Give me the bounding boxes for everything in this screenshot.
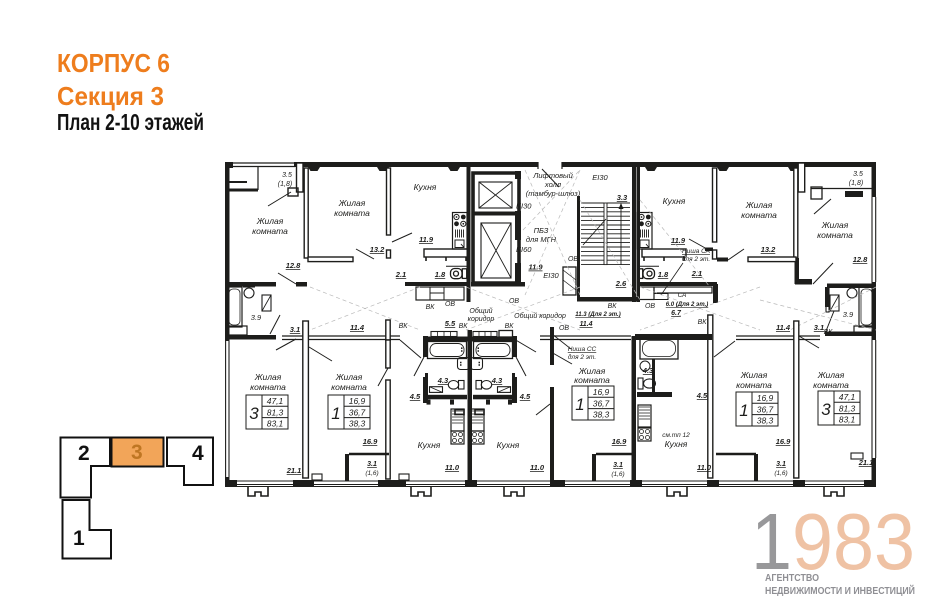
svg-text:4: 4: [192, 442, 204, 465]
svg-text:комната: комната: [817, 230, 853, 240]
svg-text:Жилая: Жилая: [740, 370, 768, 380]
svg-text:EI30: EI30: [592, 173, 608, 182]
svg-text:1: 1: [73, 527, 85, 550]
svg-text:(1,8): (1,8): [849, 180, 863, 187]
svg-text:холл: холл: [544, 180, 562, 189]
svg-text:ОВ: ОВ: [509, 298, 519, 305]
svg-text:16,9: 16,9: [757, 393, 774, 403]
svg-text:Лифтовый: Лифтовый: [532, 171, 573, 180]
svg-text:Кухня: Кухня: [414, 182, 437, 192]
svg-text:16,9: 16,9: [593, 387, 610, 397]
svg-text:16.9: 16.9: [776, 437, 791, 446]
svg-text:3: 3: [821, 400, 831, 419]
svg-text:ВК: ВК: [505, 323, 515, 330]
svg-text:ВК: ВК: [399, 323, 409, 330]
svg-text:комната: комната: [736, 380, 772, 390]
svg-text:Кухня: Кухня: [497, 440, 520, 450]
svg-text:11.0: 11.0: [445, 463, 460, 472]
svg-text:3.9: 3.9: [843, 310, 854, 319]
svg-text:83,1: 83,1: [839, 415, 856, 425]
svg-text:2.1: 2.1: [395, 270, 406, 279]
svg-text:ОВ: ОВ: [645, 303, 655, 310]
svg-text:Жилая: Жилая: [335, 372, 363, 382]
svg-text:Кухня: Кухня: [663, 196, 686, 206]
svg-text:для 2 эт.: для 2 эт.: [682, 255, 710, 263]
svg-text:4.5: 4.5: [519, 392, 531, 401]
svg-text:(1,6): (1,6): [611, 471, 624, 478]
svg-text:коридор: коридор: [468, 315, 495, 323]
svg-text:13.2: 13.2: [761, 245, 776, 254]
svg-text:НЕДВИЖИМОСТИ И ИНВЕСТИЦИЙ: НЕДВИЖИМОСТИ И ИНВЕСТИЦИЙ: [765, 584, 915, 597]
svg-text:3: 3: [249, 404, 259, 423]
svg-text:38,3: 38,3: [593, 410, 610, 420]
svg-text:16,9: 16,9: [349, 396, 366, 406]
svg-text:Ниша СС: Ниша СС: [568, 346, 597, 353]
svg-text:Жилая: Жилая: [745, 200, 773, 210]
svg-text:Жилая: Жилая: [254, 372, 282, 382]
svg-text:11.0: 11.0: [697, 463, 712, 472]
svg-text:Общий: Общий: [469, 307, 492, 315]
svg-text:3.3: 3.3: [617, 193, 628, 202]
svg-text:План 2-10 этажей: План 2-10 этажей: [57, 109, 204, 135]
svg-text:EI30: EI30: [516, 202, 532, 211]
svg-text:Жилая: Жилая: [256, 216, 284, 226]
svg-text:47,1: 47,1: [267, 396, 284, 406]
svg-text:11.4: 11.4: [350, 323, 365, 332]
svg-text:11.9: 11.9: [419, 235, 434, 244]
svg-text:12.8: 12.8: [286, 261, 301, 270]
svg-text:4.5: 4.5: [409, 392, 421, 401]
svg-text:Жилая: Жилая: [338, 198, 366, 208]
svg-text:47,1: 47,1: [839, 392, 856, 402]
svg-text:для 2 эт.: для 2 эт.: [568, 353, 596, 361]
svg-text:3.9: 3.9: [251, 313, 262, 322]
svg-text:38,3: 38,3: [757, 416, 774, 426]
svg-text:EI60: EI60: [516, 245, 532, 254]
svg-text:ОВ: ОВ: [445, 301, 455, 308]
svg-text:комната: комната: [741, 210, 777, 220]
svg-text:81,3: 81,3: [839, 403, 856, 413]
svg-text:(1,6): (1,6): [365, 470, 378, 477]
svg-text:ВК: ВК: [824, 329, 834, 336]
svg-text:1: 1: [331, 404, 340, 423]
svg-text:3: 3: [131, 441, 143, 464]
svg-text:1.8: 1.8: [658, 270, 669, 279]
svg-text:Жилая: Жилая: [817, 370, 845, 380]
svg-text:АГЕНТСТВО: АГЕНТСТВО: [765, 573, 819, 584]
svg-text:комната: комната: [574, 375, 610, 385]
svg-text:11.3 (Для 2 эт.): 11.3 (Для 2 эт.): [575, 312, 620, 318]
svg-text:комната: комната: [252, 226, 288, 236]
svg-text:13.2: 13.2: [370, 245, 385, 254]
svg-text:3.1: 3.1: [776, 461, 786, 468]
svg-text:12.8: 12.8: [853, 255, 868, 264]
svg-text:3.5: 3.5: [853, 171, 863, 178]
svg-text:11.9: 11.9: [528, 263, 543, 272]
svg-text:38,3: 38,3: [349, 419, 366, 429]
svg-text:2: 2: [78, 442, 90, 465]
svg-text:для МГН: для МГН: [526, 235, 557, 244]
svg-text:11.0: 11.0: [530, 463, 545, 472]
svg-text:3.5: 3.5: [282, 172, 292, 179]
svg-text:6.7: 6.7: [671, 310, 682, 317]
svg-text:Ниша СА: Ниша СА: [682, 248, 710, 255]
svg-text:Кухня: Кухня: [418, 440, 441, 450]
svg-text:Кухня: Кухня: [665, 439, 688, 449]
svg-text:КОРПУС 6: КОРПУС 6: [57, 48, 170, 78]
svg-text:ПБЗ: ПБЗ: [534, 226, 549, 235]
svg-text:81,3: 81,3: [267, 407, 284, 417]
svg-text:36,7: 36,7: [349, 407, 366, 417]
svg-text:СА: СА: [678, 292, 687, 299]
svg-text:2.6: 2.6: [615, 279, 627, 288]
svg-text:21.1: 21.1: [286, 466, 302, 475]
svg-text:EI30: EI30: [543, 271, 559, 280]
svg-text:Жилая: Жилая: [821, 220, 849, 230]
svg-text:1.8: 1.8: [435, 270, 446, 279]
svg-text:36,7: 36,7: [593, 398, 610, 408]
svg-text:(1,6): (1,6): [774, 470, 787, 477]
svg-text:комната: комната: [334, 208, 370, 218]
svg-text:4.3: 4.3: [437, 376, 449, 385]
svg-text:3.1: 3.1: [290, 325, 300, 334]
svg-text:(1,8): (1,8): [278, 181, 292, 188]
svg-text:ОВ: ОВ: [559, 325, 569, 332]
svg-text:Общий коридор: Общий коридор: [514, 312, 566, 320]
svg-text:см.тп 12: см.тп 12: [662, 432, 690, 439]
svg-text:ВК: ВК: [698, 319, 708, 326]
svg-text:4.3: 4.3: [491, 376, 503, 385]
svg-text:ВК: ВК: [426, 304, 436, 311]
svg-text:ВК: ВК: [459, 323, 469, 330]
svg-text:11.4: 11.4: [776, 323, 791, 332]
svg-text:6.0 (Для 2 эт.): 6.0 (Для 2 эт.): [666, 302, 709, 308]
svg-text:2.1: 2.1: [691, 269, 702, 278]
svg-text:36,7: 36,7: [757, 404, 774, 414]
svg-text:ВК: ВК: [608, 303, 618, 310]
svg-text:комната: комната: [250, 382, 286, 392]
svg-text:11.9: 11.9: [671, 236, 686, 245]
svg-text:3.1: 3.1: [367, 461, 377, 468]
svg-text:83,1: 83,1: [267, 419, 284, 429]
svg-text:ОВ: ОВ: [568, 256, 578, 263]
svg-text:3.1: 3.1: [613, 462, 623, 469]
svg-text:16.9: 16.9: [612, 437, 627, 446]
svg-text:Секция 3: Секция 3: [57, 81, 164, 111]
svg-text:1: 1: [739, 401, 748, 420]
svg-text:1: 1: [575, 395, 584, 414]
svg-text:16.9: 16.9: [363, 437, 378, 446]
svg-text:5.5: 5.5: [445, 319, 456, 328]
svg-text:комната: комната: [813, 380, 849, 390]
svg-text:комната: комната: [331, 382, 367, 392]
svg-text:4.5: 4.5: [696, 391, 708, 400]
svg-text:11.4: 11.4: [579, 321, 592, 328]
